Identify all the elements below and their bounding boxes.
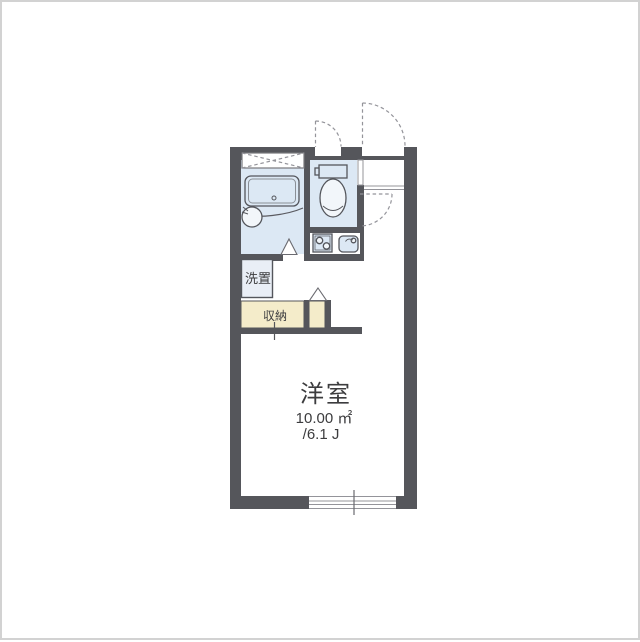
main-room-area-sqm: 10.00 ㎡ bbox=[296, 410, 353, 427]
exterior-wall-left bbox=[230, 147, 241, 509]
main-window-opening bbox=[309, 496, 396, 509]
bathtub-icon bbox=[245, 176, 299, 206]
wall-bathroom-toilet bbox=[304, 160, 310, 261]
main-room-label: 洋室 bbox=[300, 381, 352, 408]
exterior-wall-bottom-right bbox=[396, 496, 417, 509]
exterior-wall-right bbox=[404, 147, 417, 509]
stove-burner-2 bbox=[323, 243, 329, 249]
exterior-wall-top-mid bbox=[341, 147, 362, 160]
toilet-flush-handle bbox=[315, 168, 319, 175]
room-door-swing bbox=[310, 288, 327, 301]
washbasin-icon bbox=[242, 207, 262, 227]
exterior-wall-bottom-left bbox=[230, 496, 309, 509]
entrance-door-sill bbox=[362, 156, 404, 160]
wall-closet-divider bbox=[304, 300, 309, 328]
exterior-wall-top-right bbox=[404, 147, 417, 160]
floor-plan-drawing: 洗置 収納 洋室 10.00 ㎡ /6.1 J bbox=[2, 2, 640, 642]
stove-burner-1 bbox=[316, 237, 322, 243]
hall-door-swing bbox=[360, 194, 392, 226]
service-door-swing bbox=[316, 121, 342, 147]
main-room-area-tatami: /6.1 J bbox=[303, 426, 340, 443]
service-door-sill bbox=[315, 156, 341, 160]
entrance-door-swing bbox=[363, 103, 406, 146]
washer-label: 洗置 bbox=[245, 271, 271, 286]
stove-icon bbox=[313, 234, 332, 252]
toilet-door-panel bbox=[358, 160, 363, 185]
closet-extension bbox=[309, 301, 325, 328]
wall-toilet-bottom bbox=[304, 227, 364, 233]
floor-plan-canvas: 洗置 収納 洋室 10.00 ㎡ /6.1 J bbox=[0, 0, 640, 640]
closet-label: 収納 bbox=[263, 309, 287, 323]
wall-kitchen-right bbox=[360, 233, 364, 261]
sink-faucet bbox=[351, 238, 356, 243]
toilet-tank bbox=[319, 165, 347, 178]
toilet-icon bbox=[320, 179, 346, 217]
wall-kitchen-bottom bbox=[304, 254, 364, 261]
